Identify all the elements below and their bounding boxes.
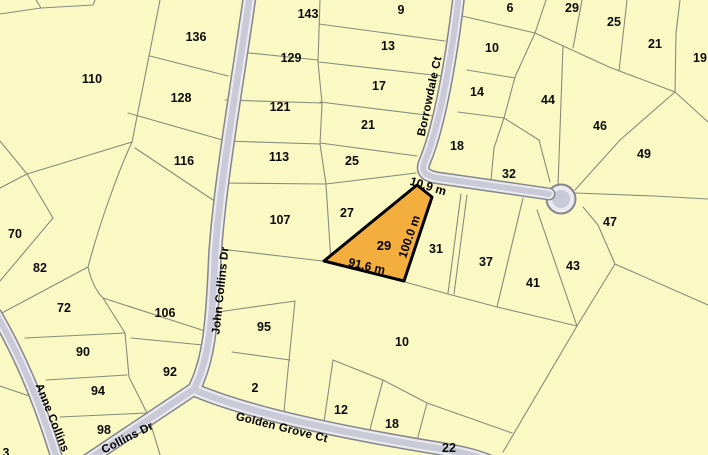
lot-label-116: 116 [174,154,194,168]
lot-label-82: 82 [33,261,47,275]
highlighted-lot-number: 29 [377,238,391,253]
lot-label-47: 47 [603,215,617,229]
lot-label-113: 113 [269,150,289,164]
lot-label-70: 70 [8,227,22,241]
parcel-map-canvas[interactable]: 10.9 m 100.0 m 91.6 m 29 John Collins Dr… [0,0,708,455]
lot-label-31: 31 [429,242,443,256]
lot-label-29: 29 [565,1,579,15]
lot-label-107: 107 [270,213,291,227]
lot-label-27: 27 [340,206,354,220]
lot-label-72: 72 [57,301,71,315]
parcel-map: 10.9 m 100.0 m 91.6 m 29 John Collins Dr… [0,0,708,455]
lot-label-2: 2 [252,381,259,395]
lot-label-22: 22 [442,441,456,455]
lot-label-110: 110 [82,72,102,86]
lot-label-98: 98 [97,423,111,437]
lot-label-129: 129 [281,51,302,65]
lot-label-21: 21 [648,37,662,51]
lot-label-18: 18 [385,417,399,431]
lot-label-106: 106 [155,306,176,320]
lot-label-25: 25 [345,154,359,168]
lot-label-9: 9 [398,3,405,17]
lot-label-90: 90 [76,345,90,359]
lot-label-44: 44 [541,93,555,107]
map-background [0,0,708,455]
lot-label-18: 18 [450,139,464,153]
lot-label-10: 10 [395,335,409,349]
lot-label-92: 92 [163,365,177,379]
lot-label-128: 128 [171,91,192,105]
lot-label-95: 95 [257,320,271,334]
lot-label-12: 12 [334,403,348,417]
lot-label-43: 43 [566,259,580,273]
lot-label-19: 19 [693,51,707,65]
lot-label-14: 14 [470,85,484,99]
lot-label-6: 6 [507,1,514,15]
lot-label-121: 121 [270,100,291,114]
lot-label-143: 143 [298,7,319,21]
lot-label-37: 37 [479,255,493,269]
lot-label-49: 49 [637,147,651,161]
lot-label-10: 10 [485,41,499,55]
lot-label-3: 3 [3,446,10,455]
lot-label-25: 25 [607,15,621,29]
lot-label-21: 21 [361,118,375,132]
lot-label-17: 17 [372,79,386,93]
lot-label-32: 32 [502,167,516,181]
lot-label-41: 41 [526,276,540,290]
lot-label-136: 136 [186,30,207,44]
lot-label-46: 46 [593,119,607,133]
lot-label-13: 13 [381,39,395,53]
lot-label-94: 94 [91,384,105,398]
